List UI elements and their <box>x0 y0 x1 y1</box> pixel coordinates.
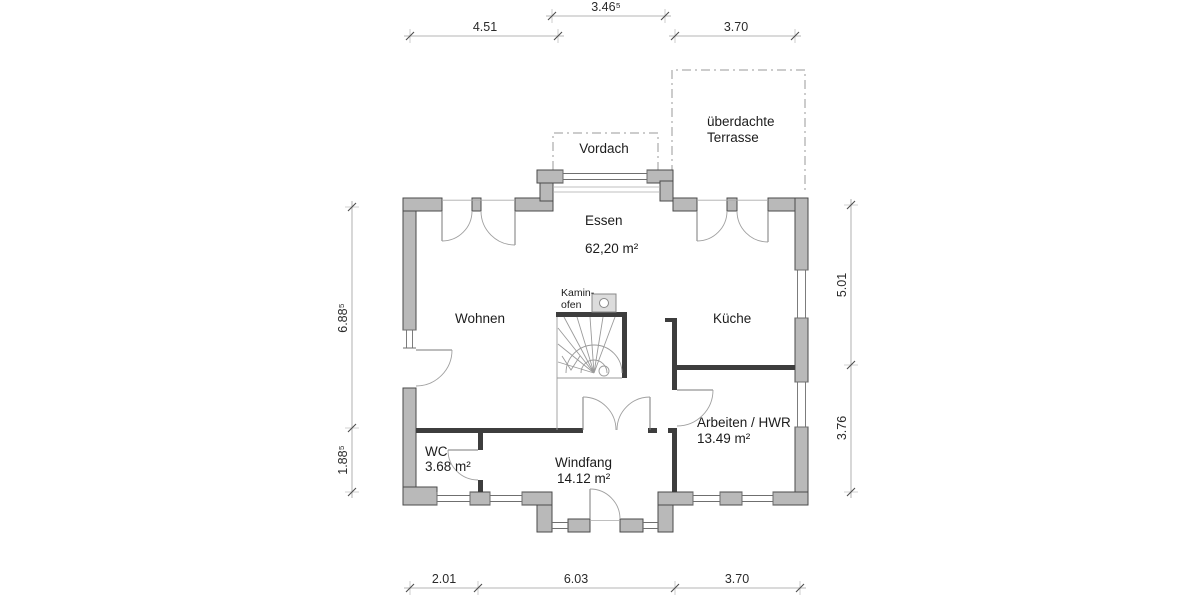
kamin-ofen-symbol: Kamin- ofen <box>561 287 616 312</box>
wall-stair-north <box>556 312 627 317</box>
bay-pillar-left <box>537 170 563 183</box>
dim-left-lower: 1.88⁵ <box>336 445 350 475</box>
wall-windfang-north-stub <box>648 428 657 433</box>
room-label-windfang: Windfang <box>555 455 612 470</box>
floor-plan-canvas: überdachte Terrasse Vordach <box>0 0 1200 600</box>
dim-right-upper: 5.01 <box>835 273 849 297</box>
wall-top-c <box>673 198 697 211</box>
dim-top-left: 4.51 <box>473 20 497 34</box>
room-area-essen: 62,20 m² <box>585 241 639 256</box>
dimension-right: 5.01 3.76 <box>835 199 858 498</box>
wall-corner-bottom-left <box>403 487 437 505</box>
bay-connector-right <box>660 181 673 201</box>
dim-top-bay: 3.46⁵ <box>591 0 621 14</box>
wall-left-upper <box>403 198 416 330</box>
terrace-label-line2: Terrasse <box>707 130 759 145</box>
entry-side-right <box>658 505 673 532</box>
wall-wc-east-lower <box>478 480 483 492</box>
dim-bottom-right: 3.70 <box>725 572 749 586</box>
entry-pillar-left <box>568 519 590 532</box>
room-label-wc: WC <box>425 444 448 459</box>
dim-left-upper: 6.88⁵ <box>336 303 350 333</box>
wall-bottom-pillar-b <box>720 492 742 505</box>
terrace-outline: überdachte Terrasse <box>672 70 805 193</box>
door-main-entrance <box>590 489 620 521</box>
entry-corner-left <box>522 492 552 505</box>
room-label-essen: Essen <box>585 213 623 228</box>
wall-windfang-north <box>416 428 583 433</box>
canopy-label: Vordach <box>579 141 629 156</box>
kamin-label-line2: ofen <box>561 299 582 311</box>
room-label-wohnen: Wohnen <box>455 311 505 326</box>
dim-top-right: 3.70 <box>724 20 748 34</box>
wall-left-lower <box>403 388 416 492</box>
wall-right-upper <box>795 198 808 270</box>
bay-connector-left <box>540 181 553 201</box>
wall-bottom-pillar-a <box>470 492 490 505</box>
wall-right-middle <box>795 318 808 382</box>
window-left-wall <box>403 330 416 348</box>
dimension-bottom: 2.01 6.03 3.70 <box>404 572 806 595</box>
dimension-top: 3.46⁵ 4.51 3.70 <box>404 0 801 43</box>
terrace-label-line1: überdachte <box>707 114 775 129</box>
door-wohnen-west <box>416 350 452 386</box>
wall-kitchen-south <box>672 365 795 370</box>
entry-pillar-right <box>620 519 643 532</box>
window-bottom-windfang-west <box>490 492 522 505</box>
stair-newel-circle <box>599 366 609 376</box>
dim-bottom-mid: 6.03 <box>564 572 588 586</box>
stove-ring <box>600 299 609 308</box>
window-bay-north <box>553 170 660 192</box>
wall-kitchen-west <box>672 318 677 370</box>
window-bottom-wc <box>437 492 470 505</box>
canopy-outline: Vordach <box>553 133 658 170</box>
dim-right-lower: 3.76 <box>835 416 849 440</box>
wall-wc-east-upper <box>478 433 483 450</box>
entry-corner-right <box>658 492 693 505</box>
floor-plan-drawing: überdachte Terrasse Vordach <box>0 0 1200 600</box>
wall-stair-east <box>622 317 627 378</box>
door-windfang-double <box>583 397 650 430</box>
window-bottom-hwr-b <box>742 492 773 505</box>
wall-top-a <box>403 198 442 211</box>
window-right-lower <box>795 382 808 427</box>
window-bottom-hwr-a <box>693 492 720 505</box>
window-entry-right <box>643 523 658 529</box>
room-area-windfang: 14.12 m² <box>557 471 611 486</box>
room-area-wc: 3.68 m² <box>425 459 471 474</box>
window-right-upper <box>795 270 808 318</box>
wall-windfang-north-junction <box>668 428 677 433</box>
dim-bottom-left: 2.01 <box>432 572 456 586</box>
wall-corner-bottom-right <box>773 492 808 505</box>
room-label-kueche: Küche <box>713 311 751 326</box>
dimension-left: 6.88⁵ 1.88⁵ <box>336 201 359 498</box>
room-label-arbeiten: Arbeiten / HWR <box>697 415 791 430</box>
room-area-arbeiten: 13.49 m² <box>697 431 751 446</box>
entry-side-left <box>537 505 552 532</box>
wall-hwr-west-upper <box>672 370 677 390</box>
window-entry-left <box>552 523 568 529</box>
kamin-label-line1: Kamin- <box>561 287 595 299</box>
wall-hwr-west-lower <box>672 433 677 492</box>
stairs <box>557 317 622 430</box>
